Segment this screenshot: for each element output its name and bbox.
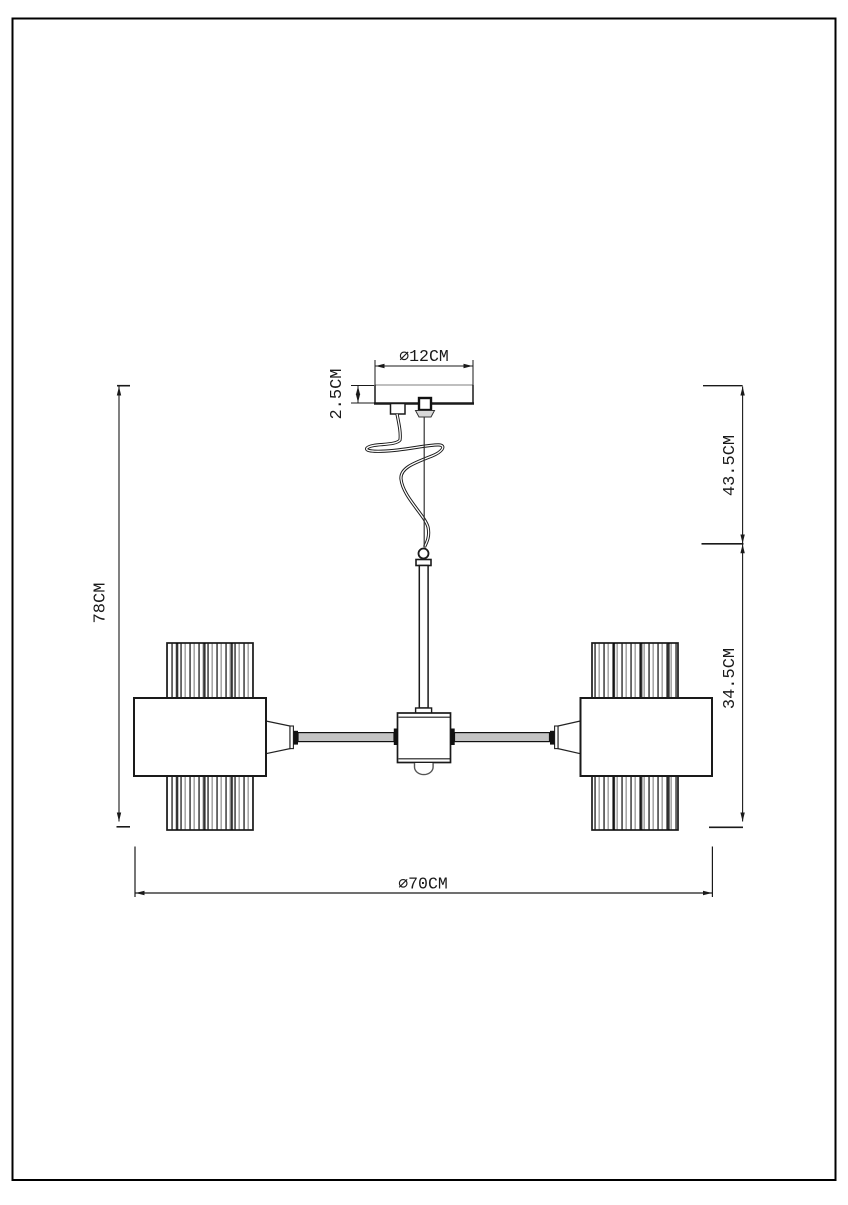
technical-drawing-canvas: ⌀12CM 2.5CM 78CM 43.5CM 34.5CM xyxy=(0,0,848,1200)
suspension-length-label: 43.5CM xyxy=(721,435,740,496)
hanger-bolt xyxy=(416,398,435,417)
dim-overall-diameter: ⌀70CM xyxy=(135,847,712,898)
left-arm xyxy=(298,733,394,742)
power-cord xyxy=(367,414,443,547)
right-shade-band xyxy=(581,698,713,776)
overall-diameter-label: ⌀70CM xyxy=(398,875,448,894)
cable-gland xyxy=(391,404,406,415)
suspension-ring xyxy=(416,549,431,566)
left-shade-band xyxy=(134,698,266,776)
lamp-fixture xyxy=(134,385,712,830)
fixture-height-label: 34.5CM xyxy=(721,648,740,709)
overall-height-label: 78CM xyxy=(92,583,111,624)
drawing-page: ⌀12CM 2.5CM 78CM 43.5CM 34.5CM xyxy=(0,0,848,1200)
center-rod xyxy=(419,566,428,709)
hub-screw-knob xyxy=(415,763,434,775)
right-socket xyxy=(550,721,583,755)
canopy-diameter-label: ⌀12CM xyxy=(399,347,449,366)
canopy-height-label: 2.5CM xyxy=(328,368,347,419)
left-shade xyxy=(134,643,266,830)
center-hub xyxy=(394,713,455,775)
right-shade xyxy=(581,643,713,830)
dim-canopy-diameter: ⌀12CM xyxy=(375,347,473,385)
left-socket xyxy=(264,721,299,755)
dim-canopy-height: 2.5CM xyxy=(328,368,374,419)
right-arm xyxy=(455,733,550,742)
dim-suspension-length: 43.5CM xyxy=(702,386,745,544)
dim-overall-height: 78CM xyxy=(92,386,131,827)
dim-fixture-height: 34.5CM xyxy=(709,544,745,827)
